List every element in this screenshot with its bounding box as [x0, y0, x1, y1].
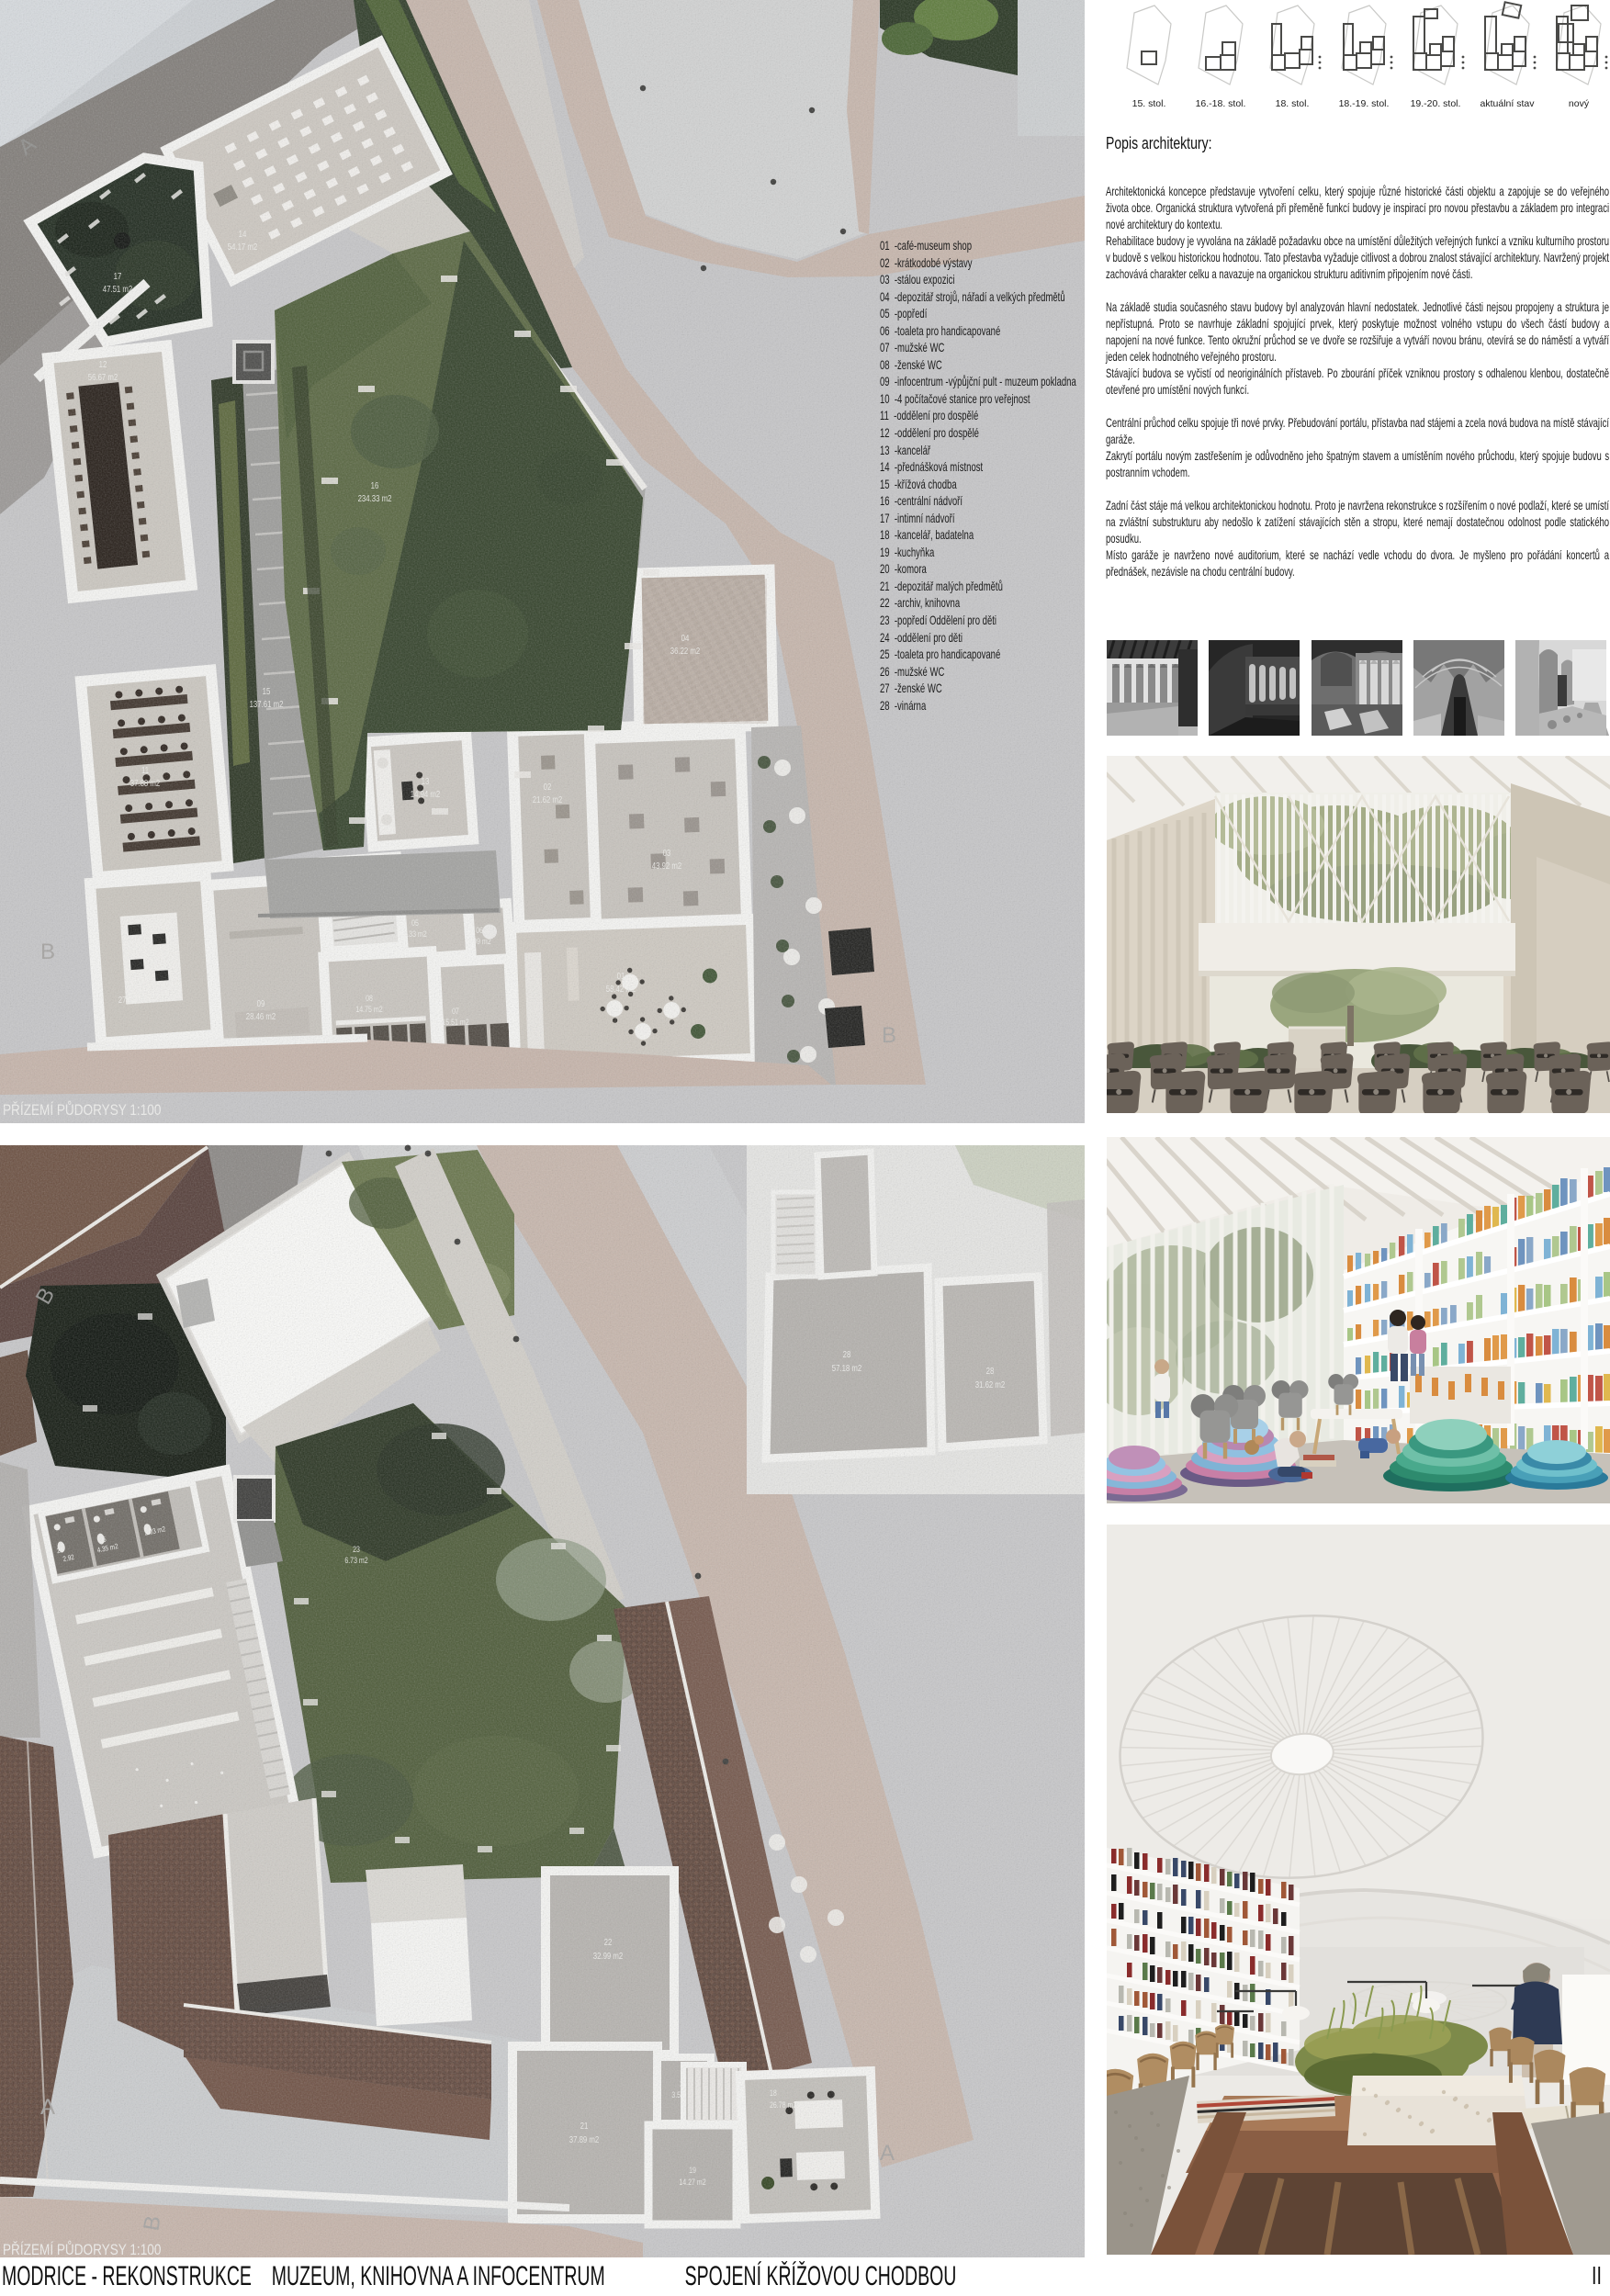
svg-text:18.-19. stol.: 18.-19. stol. [1339, 98, 1390, 109]
svg-text:nový: nový [1569, 98, 1590, 109]
svg-text:16.-18. stol.: 16.-18. stol. [1196, 98, 1246, 109]
svg-text:18. stol.: 18. stol. [1276, 98, 1310, 109]
svg-text:15. stol.: 15. stol. [1132, 98, 1166, 109]
svg-text:aktuální stav: aktuální stav [1481, 98, 1536, 109]
svg-text:19.-20. stol.: 19.-20. stol. [1411, 98, 1461, 109]
